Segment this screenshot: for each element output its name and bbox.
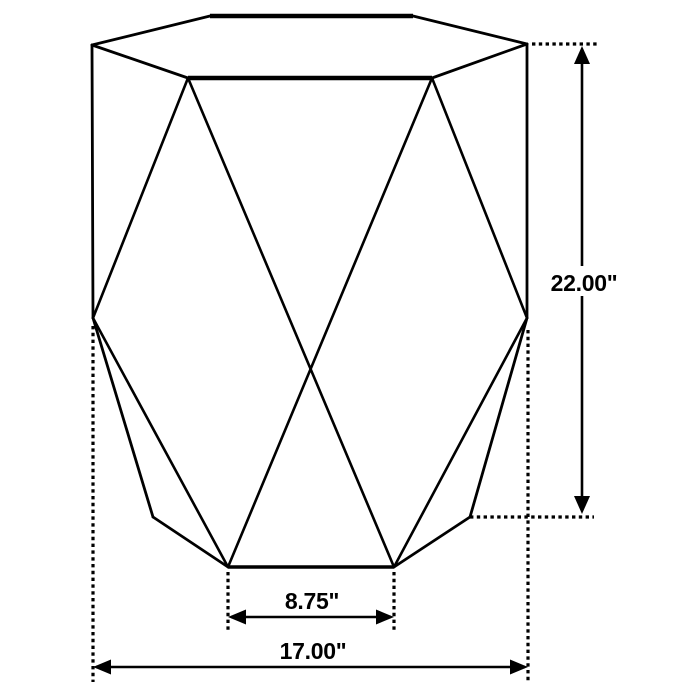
height-dimension: 22.00" — [548, 46, 620, 514]
overall-width-dimension: 17.00" — [93, 638, 528, 675]
lower-left-facet-edge — [93, 318, 153, 517]
arrowhead-right-icon — [376, 610, 394, 625]
height-dimension-label: 22.00" — [551, 270, 618, 296]
top-left-back-edge — [92, 16, 210, 45]
table-top-outline — [92, 16, 527, 78]
extension-dotted-lines — [93, 44, 597, 682]
arrowhead-down-icon — [574, 496, 590, 514]
lower-right-facet-edge — [470, 318, 527, 517]
facet-cross-left-to-right — [188, 78, 394, 567]
top-right-back-edge — [413, 16, 527, 44]
table-dimension-diagram: 22.00" 8.75" 17.00" — [0, 0, 700, 700]
table-side-silhouette — [92, 44, 527, 567]
base-edge-dimension-label: 8.75" — [285, 588, 339, 614]
lower-left-corner-edge — [153, 517, 228, 567]
facet-left-lower-edge — [93, 318, 228, 567]
arrowhead-left-icon — [93, 660, 111, 675]
facet-right-upper-edge — [432, 78, 527, 318]
base-edge-dimension: 8.75" — [228, 588, 394, 625]
diagram-canvas: 22.00" 8.75" 17.00" — [0, 0, 700, 700]
top-right-front-edge — [432, 44, 527, 78]
overall-width-dimension-label: 17.00" — [280, 638, 347, 664]
facet-cross-right-to-left — [228, 78, 432, 567]
facet-left-upper-edge — [93, 78, 188, 318]
lower-right-corner-edge — [394, 517, 470, 567]
left-side-edge — [92, 45, 93, 318]
top-left-front-edge — [92, 45, 188, 78]
arrowhead-right-icon — [510, 660, 528, 675]
facet-right-lower-edge — [394, 318, 527, 567]
arrowhead-up-icon — [574, 46, 590, 64]
arrowhead-left-icon — [228, 610, 246, 625]
facet-edge-lines — [93, 78, 527, 567]
